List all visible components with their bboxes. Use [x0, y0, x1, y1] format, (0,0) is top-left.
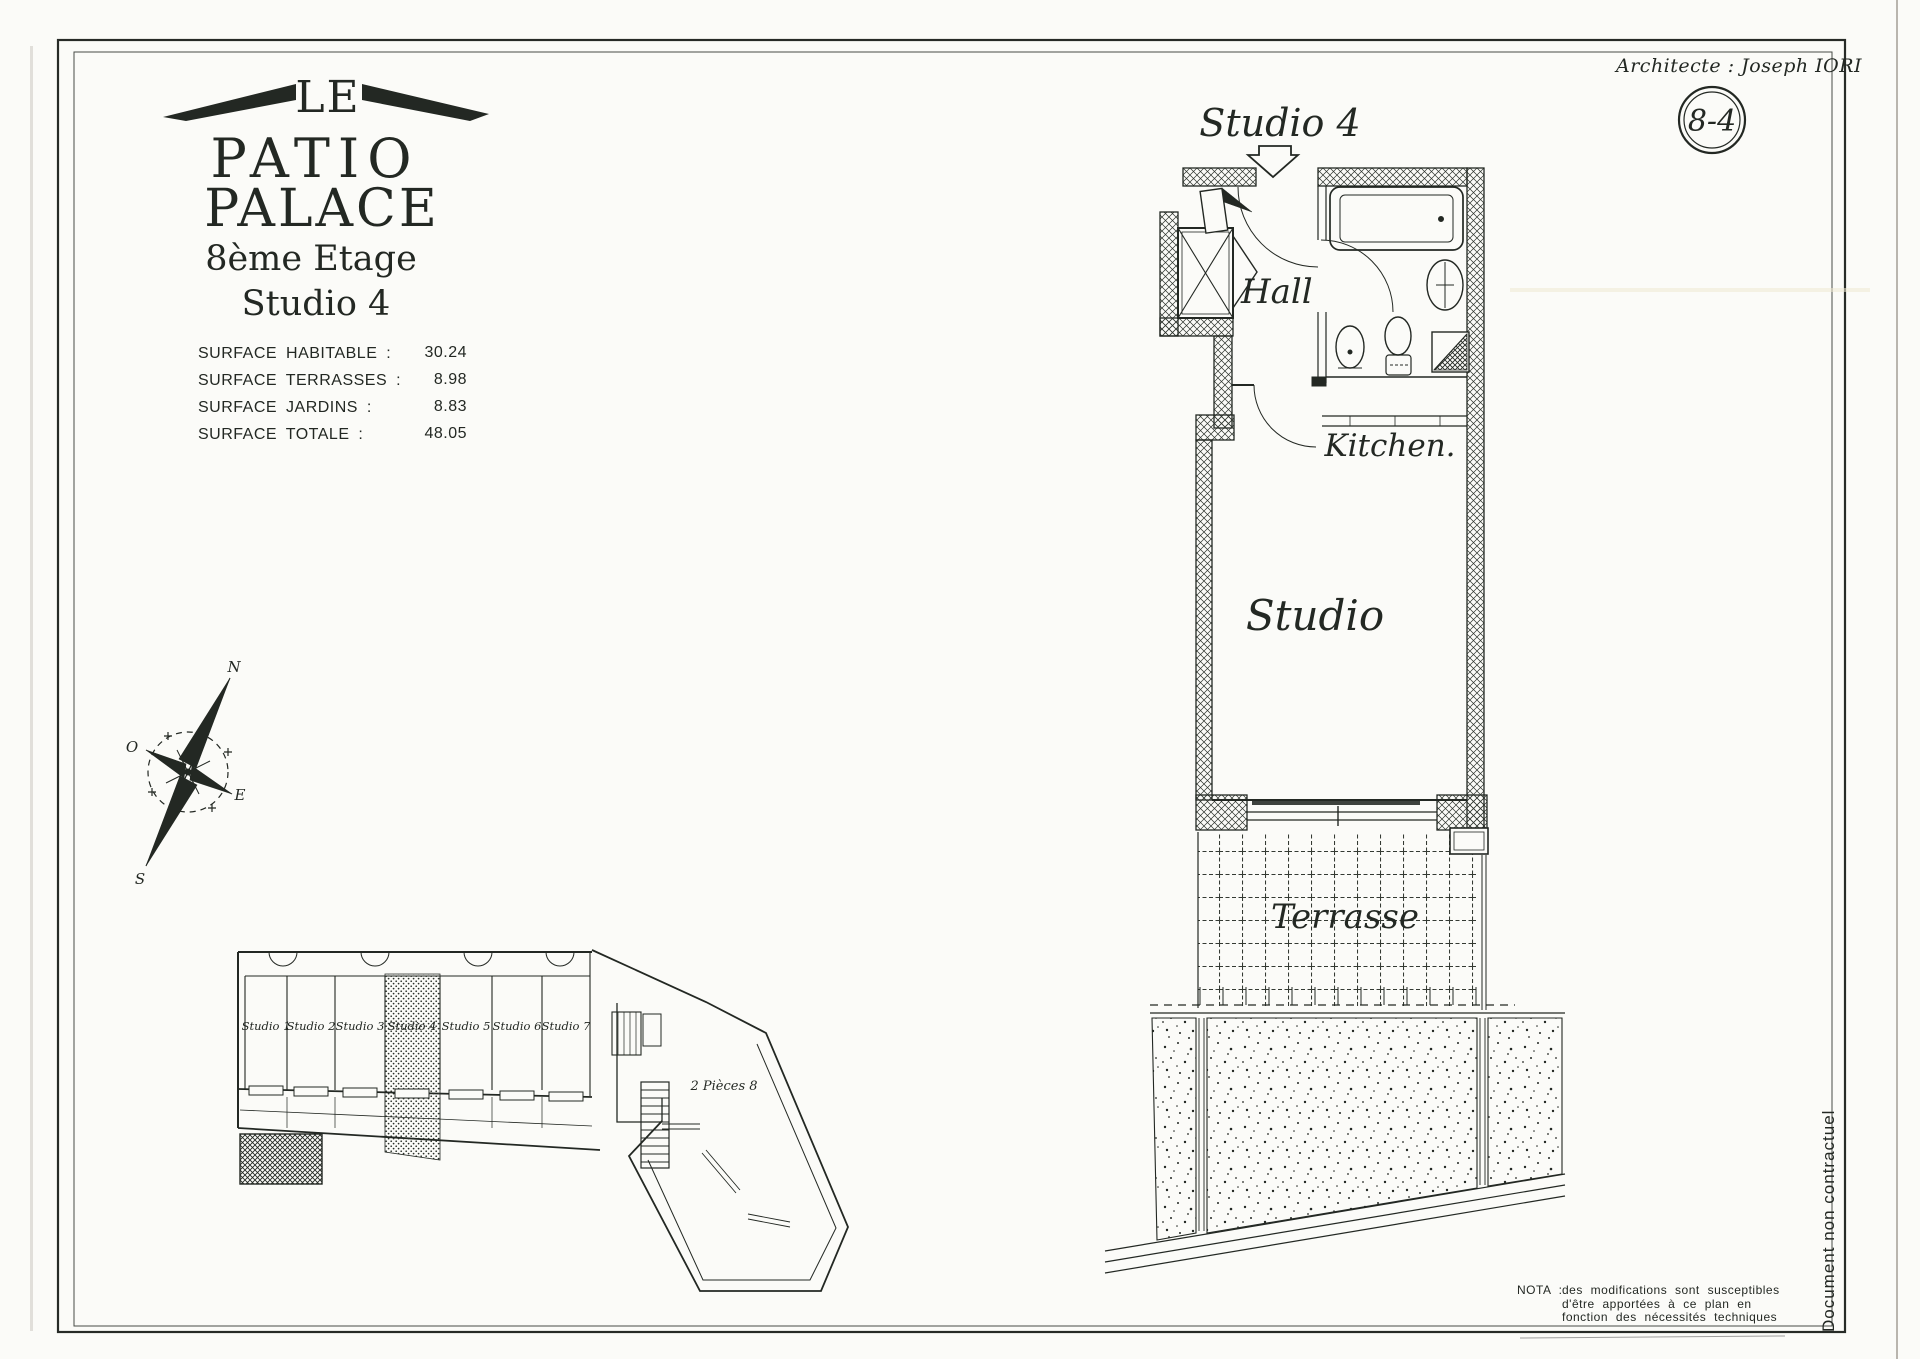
- key-plan-highlighted-unit: [385, 974, 440, 1160]
- planter-box: [1450, 828, 1488, 854]
- key-plan-apartment-label: 2 Pièces 8: [689, 1079, 757, 1094]
- logo-palace: PALACE: [204, 179, 440, 239]
- key-plan-unit-label: Studio 5: [442, 1019, 491, 1033]
- terrace-label: Terrasse: [1271, 897, 1419, 937]
- hall-label: Hall: [1240, 272, 1313, 312]
- architect-credit: Architecte : Joseph IORI: [1614, 55, 1862, 77]
- key-plan-unit-label: Studio 3: [336, 1019, 385, 1033]
- nota-line: des modifications sont susceptibles: [1562, 1283, 1780, 1297]
- surface-row-value: 8.83: [434, 398, 467, 415]
- surface-row-label: SURFACE TOTALE :: [198, 426, 363, 443]
- compass-rose: N S O E: [126, 658, 246, 888]
- plan-number-badge: 8-4: [1679, 87, 1745, 153]
- logo-roof-right: [362, 84, 489, 121]
- key-plan-dark-terrace: [240, 1134, 322, 1184]
- key-plan-unit-label: Studio 4: [388, 1019, 437, 1033]
- key-plan: Studio 1 Studio 2 Studio 3 Studio 4 Stud…: [238, 950, 848, 1291]
- main-floor-plan: Studio 4: [1105, 101, 1565, 1273]
- surface-table: SURFACE HABITABLE : 30.24 SURFACE TERRAS…: [198, 344, 467, 443]
- surface-row-value: 48.05: [424, 425, 467, 442]
- surface-row-label: SURFACE JARDINS :: [198, 399, 372, 416]
- nota-block: NOTA : des modifications sont susceptibl…: [1517, 1283, 1785, 1338]
- bidet: [1336, 326, 1364, 368]
- compass-needle-north: [179, 678, 230, 768]
- compass-needle-east: [190, 766, 232, 794]
- compass-label-s: S: [135, 870, 145, 888]
- key-plan-unit-label: Studio 1: [242, 1019, 291, 1033]
- compass-label-o: O: [126, 738, 138, 756]
- key-plan-unit-label: Studio 7: [542, 1019, 592, 1033]
- kitchen-counter: [1322, 416, 1467, 426]
- key-plan-right-wing: [592, 950, 848, 1291]
- compass-label-e: E: [234, 786, 246, 804]
- nota-label: NOTA :: [1517, 1283, 1562, 1297]
- key-plan-unit-label: Studio 6: [493, 1019, 542, 1033]
- kitchen-label: Kitchen.: [1323, 428, 1455, 464]
- surface-row-value: 8.98: [434, 371, 467, 388]
- plan-number: 8-4: [1688, 104, 1736, 139]
- studio-label: Studio: [1246, 591, 1384, 640]
- studio-window-wall: [1212, 799, 1467, 826]
- toilet: [1385, 317, 1411, 355]
- logo-roof-left: [163, 84, 296, 121]
- logo-le-patio-palace: LE PATIO PALACE 8ème Etage Studio 4: [163, 72, 489, 324]
- bathroom-fixtures: [1330, 187, 1469, 375]
- key-plan-stairs: [612, 1012, 669, 1168]
- scanned-floor-plan-page: LE PATIO PALACE 8ème Etage Studio 4 SURF…: [0, 0, 1920, 1359]
- shower-tray: [1432, 332, 1469, 372]
- compass-needle-south: [146, 776, 197, 866]
- kitchen-door-arc: [1254, 385, 1316, 447]
- plan-title: Studio 4: [1199, 101, 1360, 145]
- garden-area: [1105, 1018, 1565, 1273]
- compass-needle-west: [146, 750, 186, 778]
- non-contractual-note: Document non contractuel: [1819, 1110, 1838, 1332]
- key-plan-unit-label: Studio 2: [287, 1019, 336, 1033]
- key-plan-windows: [662, 1124, 790, 1227]
- document-canvas: LE PATIO PALACE 8ème Etage Studio 4 SURF…: [0, 0, 1920, 1359]
- surface-row-label: SURFACE TERRASSES :: [198, 372, 401, 389]
- surface-row-value: 30.24: [424, 344, 467, 361]
- logo-le: LE: [295, 72, 360, 123]
- nota-line: d'être apportées à ce plan en: [1562, 1297, 1752, 1311]
- interior-walls: [1232, 186, 1467, 447]
- compass-label-n: N: [226, 658, 241, 676]
- logo-floor: 8ème Etage: [205, 239, 417, 279]
- nota-line: fonction des nécessités techniques: [1562, 1310, 1777, 1324]
- surface-row-label: SURFACE HABITABLE :: [198, 345, 391, 362]
- logo-unit: Studio 4: [242, 284, 391, 324]
